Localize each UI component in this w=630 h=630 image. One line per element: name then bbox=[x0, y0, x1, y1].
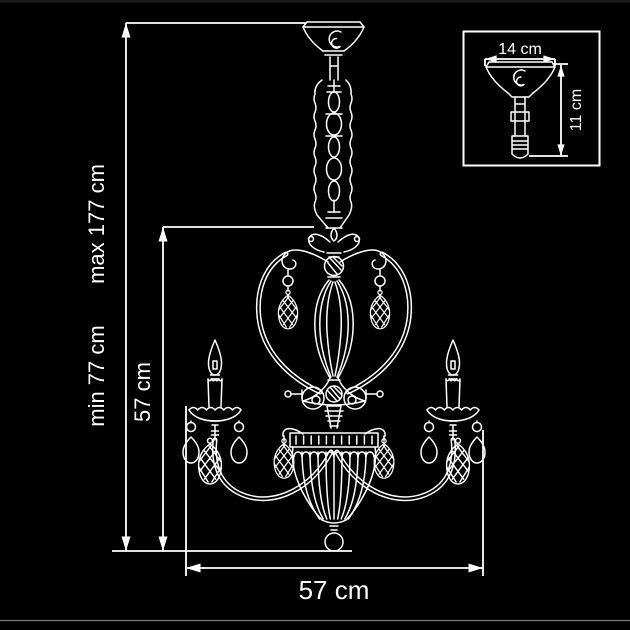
swag-pendant-right bbox=[365, 429, 394, 479]
lower-trumpet-and-hub bbox=[285, 378, 383, 428]
dimension-label-min-height: min 77 cm bbox=[84, 325, 109, 426]
dimension-label-max-height: max 177 cm bbox=[84, 164, 109, 284]
chandelier-drawing bbox=[183, 22, 485, 551]
swag-pendant-left bbox=[274, 429, 303, 479]
inset-canopy-drawing bbox=[486, 62, 555, 158]
top-border-strip bbox=[0, 0, 630, 3]
top-crown-finial bbox=[309, 228, 360, 277]
upper-scroll-arm-left bbox=[258, 250, 328, 392]
center-glass-baluster bbox=[315, 280, 353, 380]
ceiling-canopy bbox=[303, 22, 364, 80]
diagram-canvas: max 177 cm min 77 cm 57 cm 57 cm bbox=[0, 0, 630, 630]
dimension-label-body-width: 57 cm bbox=[299, 575, 370, 605]
inset-label-canopy-height: 11 cm bbox=[568, 89, 585, 131]
inset-label-canopy-width: 14 cm bbox=[498, 41, 542, 58]
upper-scroll-arm-right bbox=[340, 250, 410, 392]
dimension-label-body-height: 57 cm bbox=[130, 362, 155, 422]
chandelier-dimension-diagram: max 177 cm min 77 cm 57 cm 57 cm bbox=[0, 0, 630, 630]
canopy-inset: 14 cm 11 cm bbox=[464, 32, 600, 166]
chain-cover-sleeve bbox=[314, 80, 352, 228]
bottom-basket bbox=[290, 433, 378, 551]
